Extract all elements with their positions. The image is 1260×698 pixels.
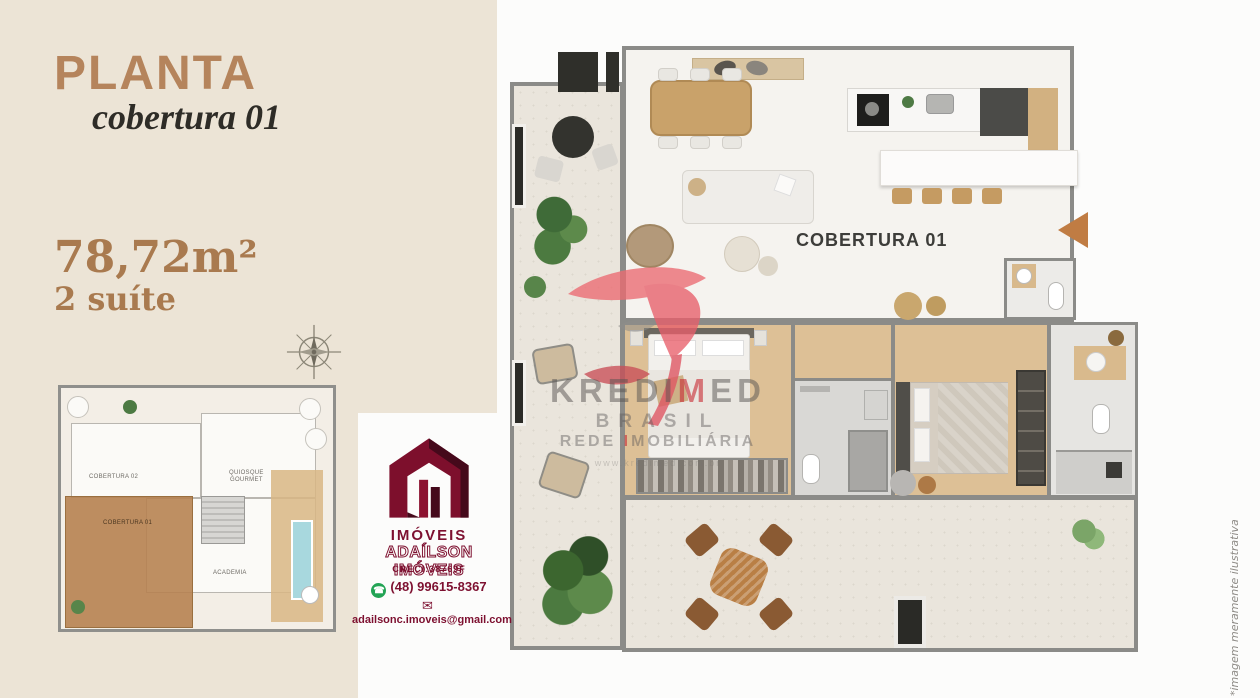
dining-chair	[658, 68, 678, 81]
bar-stool	[982, 188, 1002, 204]
terrace-plant-right	[1068, 516, 1108, 554]
terrace-grill	[894, 596, 926, 648]
bath2-toilet	[1092, 404, 1110, 434]
wardrobe-2	[1016, 370, 1046, 486]
lavabo-toilet	[1048, 282, 1064, 310]
window-slit-1	[512, 124, 526, 208]
planter-box-1	[558, 52, 598, 92]
mini-tree-1	[123, 400, 137, 414]
bath2-plant	[1108, 330, 1124, 346]
dining-chair	[722, 136, 742, 149]
mini-stairs	[201, 496, 245, 544]
bed2-headboard	[896, 382, 910, 474]
agency-email-row: ✉adailsonc.imoveis@gmail.com	[352, 599, 506, 626]
sofa-pillow-beige	[688, 178, 706, 196]
agency-phone-row: ☎(48) 99615-8367	[360, 579, 498, 598]
planter-box-2	[606, 52, 619, 92]
real-estate-floorplan-flyer: { "colors": { "background": "#ECE4D6", "…	[0, 0, 1260, 698]
suite-count: 2 suíte	[54, 280, 176, 318]
bar-stool	[922, 188, 942, 204]
envelope-icon: ✉	[422, 599, 433, 614]
mini-umbrella-2	[299, 398, 321, 420]
mini-umbrella-1	[67, 396, 89, 418]
refrigerator	[980, 88, 1028, 136]
mini-label-academia: ACADEMIA	[213, 570, 247, 577]
bath1-toilet	[802, 454, 820, 484]
mini-floor-plan: COBERTURA 02 QUIOSQUE GOURMET COBERTURA …	[58, 385, 336, 632]
bed2-pillow-1	[914, 388, 930, 422]
armchair	[626, 224, 674, 268]
balcony-plant-small	[524, 276, 546, 298]
unit-label: COBERTURA 01	[796, 230, 947, 251]
coffee-table	[724, 236, 760, 272]
main-floor-plan: COBERTURA 01	[508, 30, 1140, 662]
area-value: 78,72m²	[54, 232, 258, 283]
compass-rose-icon	[285, 323, 343, 381]
agency-email: adailsonc.imoveis@gmail.com	[352, 614, 512, 626]
bath1-shower	[848, 430, 888, 492]
terrace-bottom	[622, 496, 1138, 652]
dining-chair	[690, 68, 710, 81]
agency-creci: CRECI:38769F	[360, 564, 498, 574]
agency-logo-text: IMÓVEIS	[360, 527, 498, 544]
coffee-table-small	[758, 256, 778, 276]
lounge-chair-1	[531, 343, 579, 386]
kitchen-plant	[902, 96, 914, 108]
mini-label-cobertura02: COBERTURA 02	[89, 474, 138, 481]
whatsapp-icon: ☎	[371, 583, 386, 598]
mini-label-quiosque: QUIOSQUE GOURMET	[229, 470, 264, 484]
bath2-shower-fixture	[1106, 462, 1122, 478]
disclaimer-note: *imagem meramente ilustrativa	[1228, 516, 1241, 696]
bed2-pillow-2	[914, 428, 930, 462]
agency-name: ADAÍLSON IMÓVEIS	[352, 544, 506, 580]
pouf-brown	[918, 476, 936, 494]
lavabo-basin	[1016, 268, 1032, 284]
window-slit-2	[512, 360, 526, 426]
page-subtitle: cobertura 01	[92, 96, 281, 138]
balcony-table	[552, 116, 594, 158]
bed1-pillow-2	[702, 340, 744, 356]
dining-chair	[658, 136, 678, 149]
jute-rug-2	[926, 296, 946, 316]
bath1-towel-bar	[800, 386, 830, 392]
bed2-blanket	[938, 383, 1008, 473]
mini-table-round	[301, 586, 319, 604]
kitchen-island	[880, 150, 1078, 186]
wardrobe-1	[636, 458, 788, 494]
pouf-gray	[890, 470, 916, 496]
bar-stool	[952, 188, 972, 204]
nightstand-1	[630, 330, 643, 346]
bath2-basin	[1086, 352, 1106, 372]
kitchen-sink	[926, 94, 954, 114]
cooktop-burner	[865, 102, 879, 116]
entry-arrow-icon	[1058, 212, 1088, 248]
mini-tree-2	[71, 600, 85, 614]
mini-room-cobertura02	[71, 423, 201, 498]
mini-label-cobertura01: COBERTURA 01	[103, 520, 152, 527]
nightstand-2	[754, 330, 767, 346]
bed1-pillow-1	[654, 340, 696, 356]
terrace-plant-large	[538, 532, 622, 628]
balcony-plant-large	[534, 196, 592, 270]
agency-phone: (48) 99615-8367	[390, 579, 486, 594]
dining-chair	[690, 136, 710, 149]
agency-house-logo-icon	[384, 430, 474, 526]
dining-chair	[722, 68, 742, 81]
mini-umbrella-3	[305, 428, 327, 450]
bar-stool	[892, 188, 912, 204]
jute-rug-1	[894, 292, 922, 320]
dining-table	[650, 80, 752, 136]
page-title: PLANTA	[54, 46, 257, 101]
bath1-vanity	[864, 390, 888, 420]
suite-1-hall	[792, 322, 894, 382]
